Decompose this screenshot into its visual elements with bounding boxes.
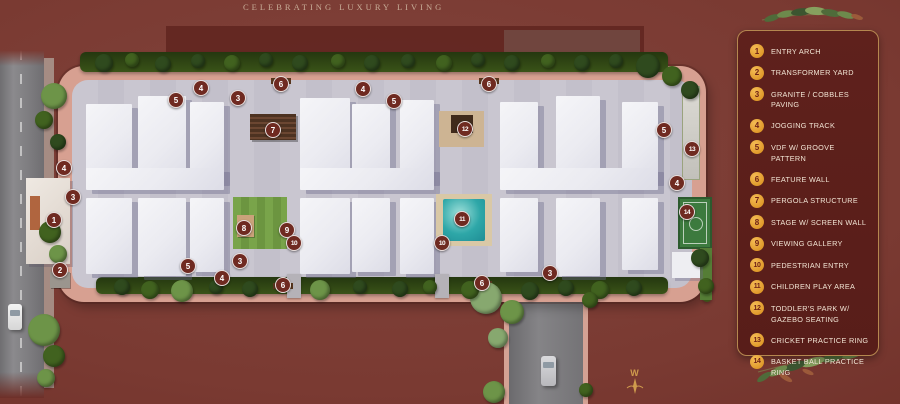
legend-list: 1ENTRY ARCH2TRANSFORMER YARD3GRANITE / C… <box>750 44 870 379</box>
tree <box>392 281 408 297</box>
plan-marker: 3 <box>65 189 81 205</box>
legend-item: 1ENTRY ARCH <box>750 44 870 58</box>
tree <box>310 280 330 300</box>
road-fade <box>0 50 44 66</box>
legend-item-number: 4 <box>750 119 764 133</box>
tree <box>50 134 66 150</box>
legend-item-label: CHILDREN PLAY AREA <box>771 280 855 293</box>
tree <box>95 54 113 72</box>
building-block <box>500 168 658 190</box>
tree <box>125 53 139 67</box>
plan-marker: 1 <box>46 212 62 228</box>
tree <box>191 54 205 68</box>
plan-marker: 11 <box>454 211 470 227</box>
plan-marker: 5 <box>656 122 672 138</box>
building-block <box>400 198 434 274</box>
tree <box>579 383 593 397</box>
plan-marker: 8 <box>236 220 252 236</box>
plan-marker: 6 <box>481 76 497 92</box>
entry-roof <box>30 196 40 230</box>
legend-item-number: 13 <box>750 333 764 347</box>
building-block <box>500 198 538 272</box>
tree <box>662 66 682 86</box>
tree <box>49 245 67 263</box>
plan-marker: 5 <box>386 93 402 109</box>
foliage-top-icon <box>760 2 865 28</box>
legend-item-label: VIEWING GALLERY <box>771 237 843 250</box>
legend-item-number: 12 <box>750 301 764 315</box>
plan-marker: 6 <box>474 275 490 291</box>
tree <box>582 292 598 308</box>
tree <box>114 279 130 295</box>
legend-item-number: 7 <box>750 194 764 208</box>
plan-marker: 5 <box>180 258 196 274</box>
legend-item-number: 14 <box>750 355 764 369</box>
tree <box>423 280 437 294</box>
plan-marker: 4 <box>355 81 371 97</box>
tree <box>292 55 308 71</box>
legend-item: 13CRICKET PRACTICE RING <box>750 333 870 347</box>
plan-marker: 12 <box>457 121 473 137</box>
plan-marker: 2 <box>52 262 68 278</box>
plan-marker: 14 <box>679 204 695 220</box>
tree <box>698 278 714 294</box>
tree <box>636 54 660 78</box>
tree <box>28 314 60 346</box>
tree <box>609 54 623 68</box>
tree <box>41 83 67 109</box>
plan-marker: 5 <box>168 92 184 108</box>
building-block <box>138 198 186 276</box>
legend-item-number: 11 <box>750 280 764 294</box>
legend-item-number: 9 <box>750 237 764 251</box>
legend-panel: 1ENTRY ARCH2TRANSFORMER YARD3GRANITE / C… <box>737 30 879 356</box>
legend-item-label: GRANITE / COBBLES PAVING <box>771 87 870 111</box>
legend-item: 2TRANSFORMER YARD <box>750 66 870 80</box>
tree <box>353 280 367 294</box>
tree <box>574 55 590 71</box>
tree <box>504 55 520 71</box>
legend-item: 12TODDLER'S PARK W/ GAZEBO SEATING <box>750 301 870 325</box>
legend-item: 7PERGOLA STRUCTURE <box>750 194 870 208</box>
plan-marker: 4 <box>214 270 230 286</box>
plan-marker: 10 <box>286 235 302 251</box>
tree <box>436 55 452 71</box>
tree <box>224 55 240 71</box>
tree <box>558 280 574 296</box>
plan-marker: 6 <box>273 76 289 92</box>
building-block <box>190 198 224 272</box>
legend-item-label: TRANSFORMER YARD <box>771 66 854 79</box>
legend-item-number: 2 <box>750 66 764 80</box>
tree <box>259 53 273 67</box>
legend-item-label: FEATURE WALL <box>771 172 830 185</box>
legend-item: 5VDF W/ GROOVE PATTERN <box>750 140 870 164</box>
car-windshield <box>543 362 554 368</box>
building-block <box>86 168 224 190</box>
compass-west-label: W <box>622 368 648 378</box>
cricket-practice-ring <box>682 86 700 180</box>
legend-item-number: 8 <box>750 215 764 229</box>
tree <box>171 280 193 302</box>
tree <box>483 381 505 403</box>
legend-item-label: STAGE W/ SCREEN WALL <box>771 215 866 228</box>
car-windshield <box>10 310 20 316</box>
plan-marker: 13 <box>684 141 700 157</box>
legend-item: 3GRANITE / COBBLES PAVING <box>750 87 870 111</box>
legend-item: 6FEATURE WALL <box>750 172 870 186</box>
tree <box>500 300 524 324</box>
tree <box>626 280 642 296</box>
plan-marker: 10 <box>434 235 450 251</box>
building-block <box>556 198 600 276</box>
plan-marker: 6 <box>275 277 291 293</box>
car <box>541 356 556 386</box>
legend-item-label: PEDESTRIAN ENTRY <box>771 258 849 271</box>
legend-item-number: 10 <box>750 258 764 272</box>
compass: W <box>622 368 648 399</box>
legend-item: 4JOGGING TRACK <box>750 119 870 133</box>
building-block <box>352 198 390 272</box>
legend-item-label: VDF W/ GROOVE PATTERN <box>771 140 870 164</box>
legend-item-label: ENTRY ARCH <box>771 44 821 57</box>
legend-item-label: BASKET BALL PRACTICE RING <box>771 355 870 379</box>
legend-item-label: JOGGING TRACK <box>771 119 835 132</box>
legend-item: 10PEDESTRIAN ENTRY <box>750 258 870 272</box>
plan-marker: 4 <box>56 160 72 176</box>
legend-item-number: 5 <box>750 140 764 154</box>
plan-marker: 4 <box>669 175 685 191</box>
tree <box>35 111 53 129</box>
plan-marker: 7 <box>265 122 281 138</box>
legend-item-number: 1 <box>750 44 764 58</box>
building-block <box>300 198 350 274</box>
masterplan-page: CELEBRATING LUXURY LIVING <box>0 0 900 404</box>
tree <box>471 53 485 67</box>
legend-item-label: PERGOLA STRUCTURE <box>771 194 858 207</box>
plan-marker: 3 <box>232 253 248 269</box>
legend-item-number: 6 <box>750 172 764 186</box>
tree <box>331 54 345 68</box>
tree <box>541 54 555 68</box>
tree <box>37 369 55 387</box>
building-block <box>86 198 132 274</box>
building-block <box>622 198 658 270</box>
tree <box>141 281 159 299</box>
tree <box>691 249 709 267</box>
court-center-circle <box>689 217 703 231</box>
tree <box>401 54 415 68</box>
plan-marker: 3 <box>542 265 558 281</box>
tree <box>242 281 258 297</box>
legend-item-number: 3 <box>750 87 764 101</box>
tree <box>155 56 171 72</box>
tree <box>521 282 539 300</box>
plan-marker: 3 <box>230 90 246 106</box>
tree <box>681 81 699 99</box>
plan-marker: 4 <box>193 80 209 96</box>
tree <box>488 328 508 348</box>
legend-item-label: CRICKET PRACTICE RING <box>771 333 868 346</box>
legend-item: 14BASKET BALL PRACTICE RING <box>750 355 870 379</box>
tree <box>364 55 380 71</box>
site-plan: 4312543674512651341489101110534663 <box>0 0 740 404</box>
legend-item: 9VIEWING GALLERY <box>750 237 870 251</box>
pedestrian-entry-ramp <box>435 274 449 298</box>
legend-item: 8STAGE W/ SCREEN WALL <box>750 215 870 229</box>
road-lane-marking <box>20 50 22 398</box>
compass-ornament-icon <box>624 378 646 394</box>
car <box>8 304 22 330</box>
legend-item-label: TODDLER'S PARK W/ GAZEBO SEATING <box>771 301 870 325</box>
tree <box>43 345 65 367</box>
building-block <box>300 168 434 190</box>
legend-item: 11CHILDREN PLAY AREA <box>750 280 870 294</box>
